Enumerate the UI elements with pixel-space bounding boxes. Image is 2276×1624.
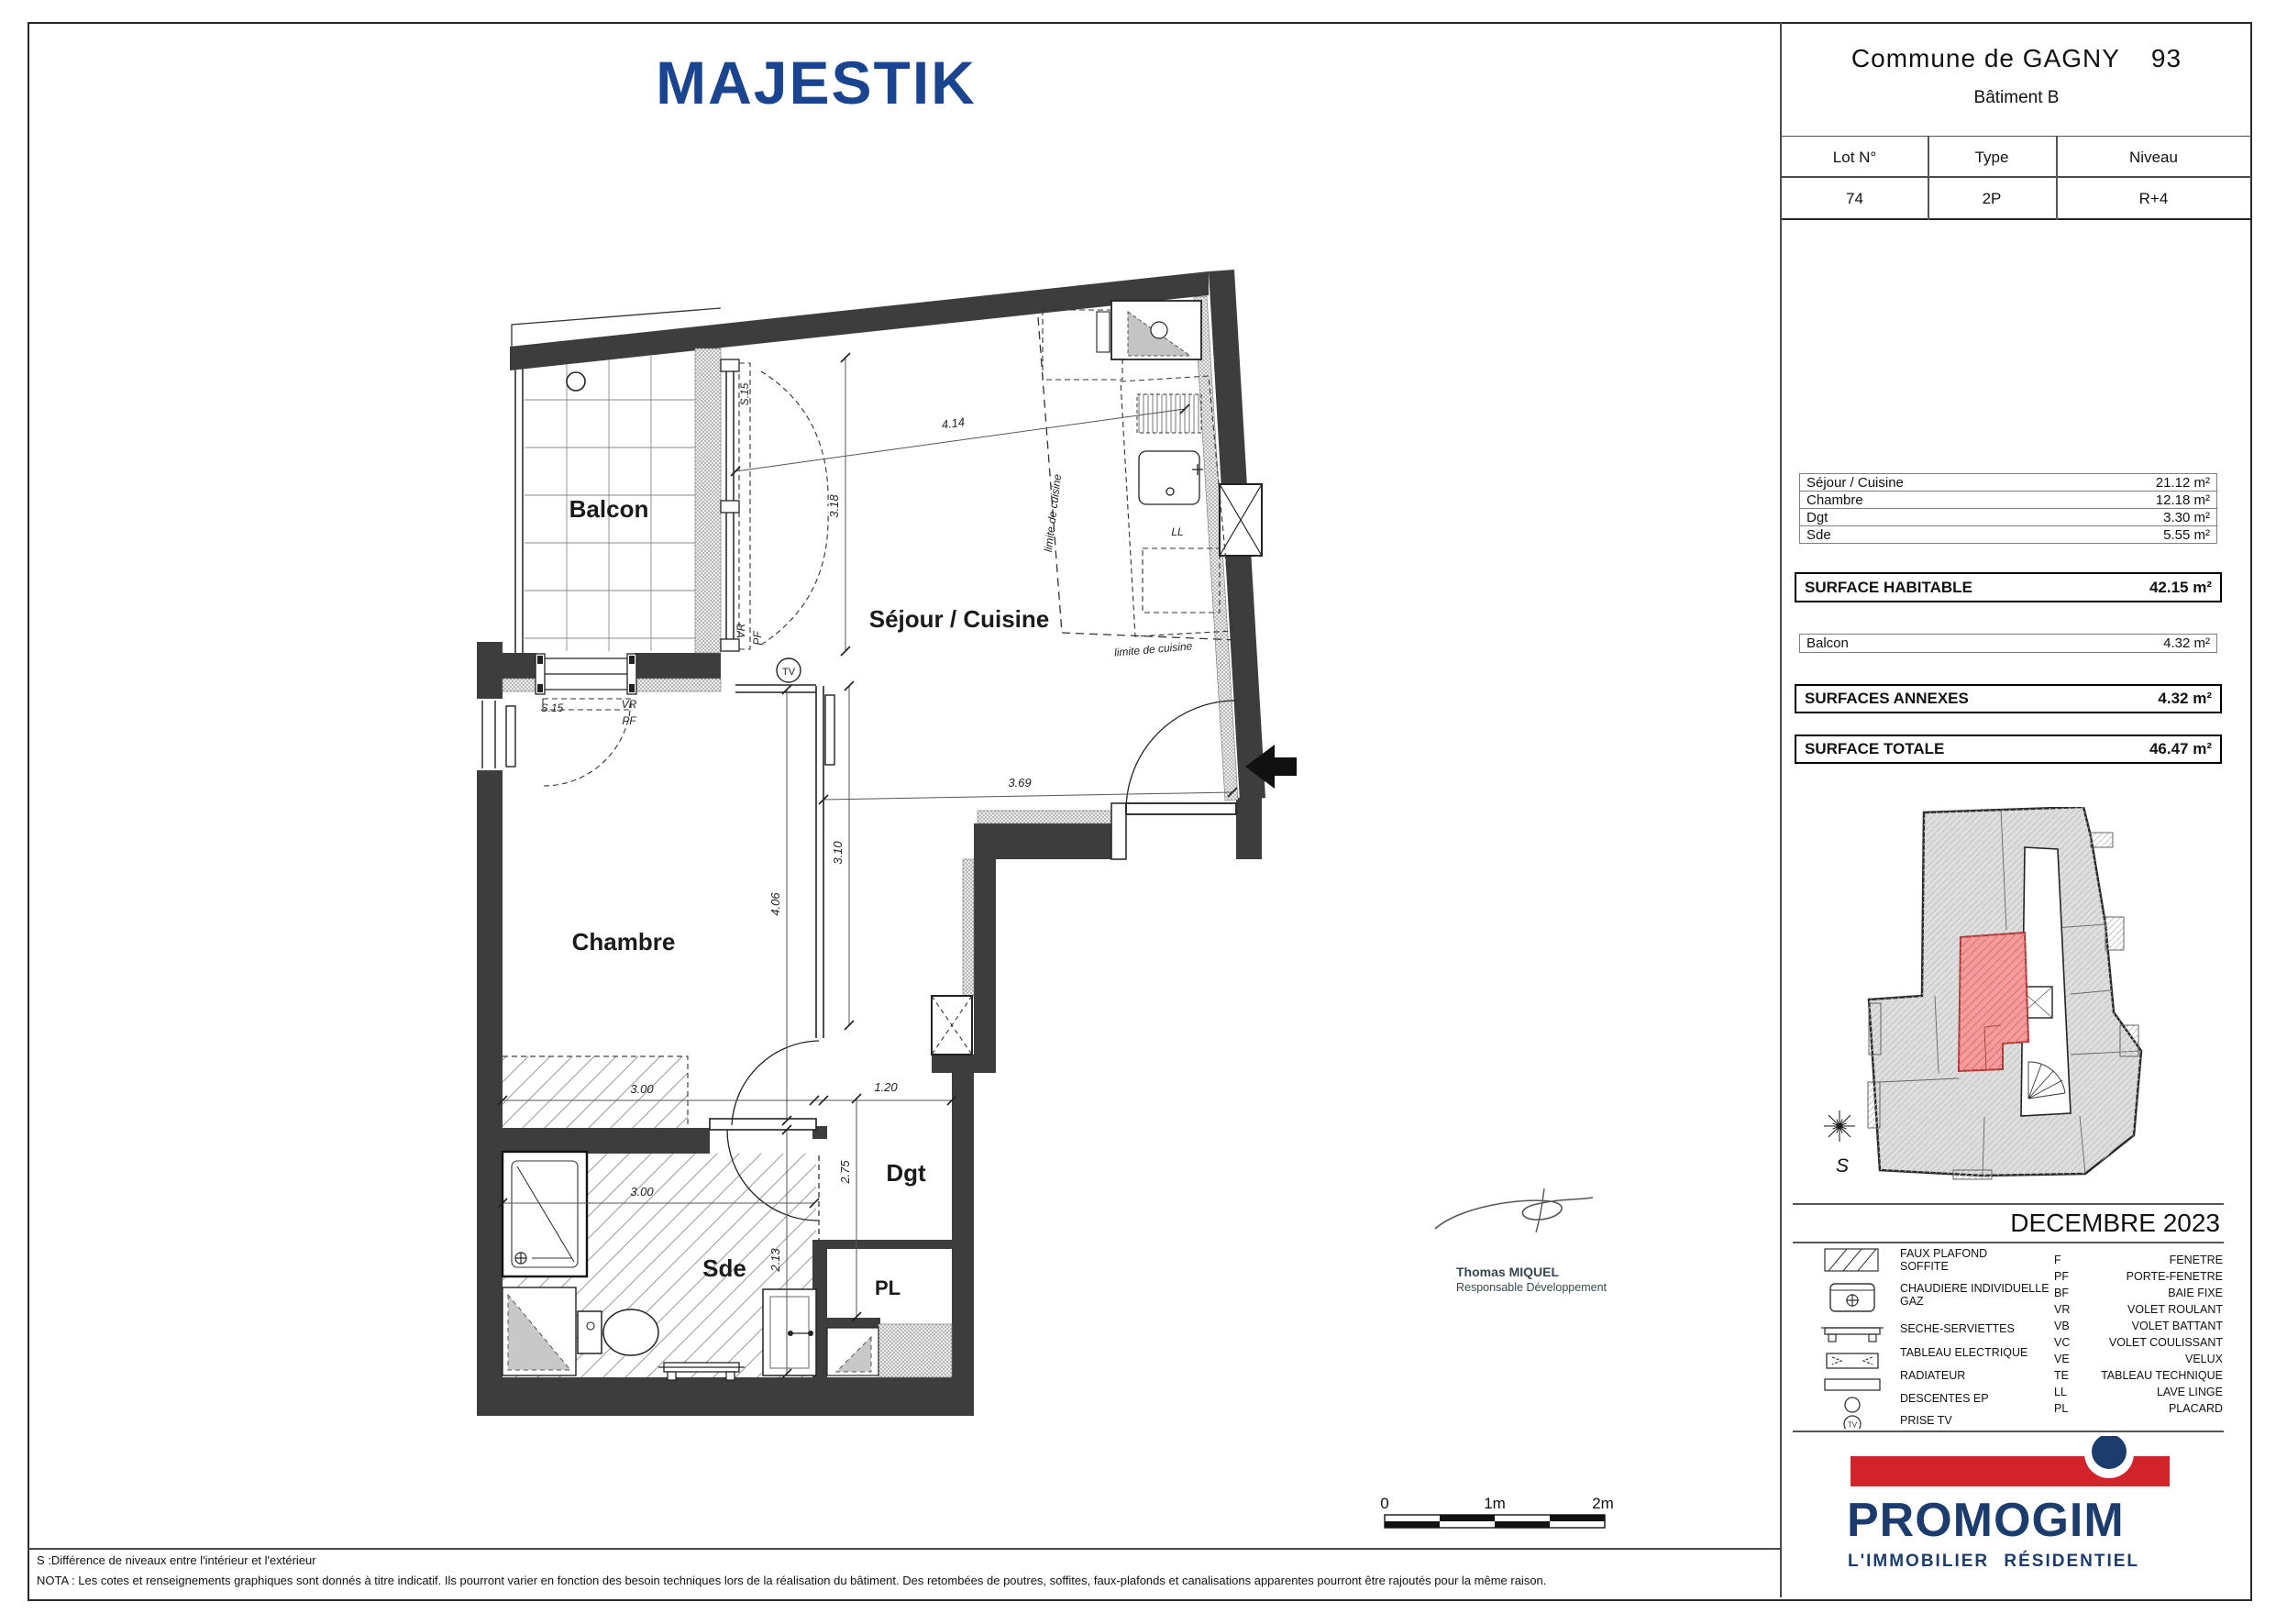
surface-totale-label: SURFACE TOTALE [1805, 740, 1944, 758]
lot-value-niveau: R+4 [2056, 190, 2251, 208]
surface-totale-box: SURFACE TOTALE46.47 m² [1795, 735, 2222, 764]
commune-name: Commune de GAGNY [1851, 44, 2120, 73]
signature: Thomas MIQUEL Responsable Développement [1435, 1188, 1608, 1294]
room-label-sejour: Séjour / Cuisine [869, 605, 1050, 633]
legend-line: SOFFITE [1900, 1260, 1987, 1273]
batiment-label: Bâtiment B [1788, 88, 2245, 108]
dim-369: 3.69 [1008, 776, 1031, 790]
balcony-vr: VR [735, 623, 747, 638]
room-label-balcon: Balcon [569, 495, 649, 523]
lot-header-niveau: Niveau [2056, 149, 2251, 167]
shower-drain-icon [515, 1253, 526, 1264]
kitchen-corner-unit [1097, 301, 1201, 359]
legend-name-bf: BAIE FIXE [2058, 1287, 2223, 1299]
legend-label-faux-plafond: FAUX PLAFOND SOFFITE [1900, 1247, 1987, 1273]
legend-name-pl: PLACARD [2058, 1402, 2223, 1415]
prise-tv-icon: TV [1844, 1416, 1861, 1429]
room-label-sde: Sde [702, 1254, 746, 1282]
scale-0: 0 [1380, 1495, 1388, 1512]
legend-icons: TV [1816, 1245, 1898, 1429]
surface-value: 3.30 m² [2163, 510, 2210, 525]
surface-habitable-label: SURFACE HABITABLE [1805, 579, 1972, 597]
faux-plafond-icon [1825, 1249, 1878, 1271]
site-mini-map: S [1788, 807, 2251, 1197]
legend-line: GAZ [1900, 1295, 2050, 1308]
dim-275: 2.75 [838, 1160, 852, 1185]
chambre-partition [735, 685, 823, 1038]
descentes-ep-icon [1845, 1398, 1860, 1412]
boiler-cabinet [763, 1289, 816, 1375]
surface-value: 12.18 m² [2156, 492, 2210, 508]
legend-line-bottom [1793, 1431, 2224, 1432]
legend-name-ve: VELUX [2058, 1353, 2223, 1365]
surface-value: 5.55 m² [2163, 527, 2210, 543]
limite-cuisine-h: limite de cuisine [1114, 639, 1194, 658]
tableau-electrique-icon [1827, 1353, 1878, 1368]
technical-shaft [932, 996, 972, 1055]
radiateur-icon [1825, 1379, 1880, 1390]
surface-label: Sde [1806, 527, 1831, 543]
washer-label: LL [1171, 525, 1183, 538]
lot-header-num: Lot N° [1782, 149, 1928, 167]
surfaces-annexes-box: SURFACES ANNEXES4.32 m² [1795, 684, 2222, 713]
lot-value-type: 2P [1928, 190, 2056, 208]
logo-tagline: L'IMMOBILIER RÉSIDENTIEL [1848, 1552, 2139, 1572]
dim-406: 4.06 [768, 892, 782, 916]
date-line-bottom [1793, 1242, 2224, 1243]
signature-name: Thomas MIQUEL [1456, 1265, 1559, 1279]
legend-line: FAUX PLAFOND [1900, 1247, 1987, 1260]
scale-1m: 1m [1484, 1495, 1506, 1512]
legend-name-f: FENETRE [2058, 1254, 2223, 1266]
surface-label: Dgt [1806, 510, 1828, 525]
legend-name-vb: VOLET BATTANT [2058, 1320, 2223, 1332]
scale-bar: 0 1m 2m [1380, 1495, 1614, 1528]
commune-dept: 93 [2151, 44, 2182, 73]
radiator-chambre [506, 706, 515, 767]
surface-totale-value: 46.47 m² [2149, 740, 2212, 758]
surface-label: Séjour / Cuisine [1806, 475, 1904, 491]
plan-sheet: MAJESTIK [0, 0, 2276, 1624]
surface-habitable-value: 42.15 m² [2149, 579, 2212, 597]
balcony-door-swing [739, 363, 828, 649]
soffit-triangle-sw [503, 1287, 576, 1375]
date-label: DECEMBRE 2023 [1793, 1209, 2220, 1238]
chambre-s15: S.15 [541, 702, 564, 714]
lot-table-line-top [1782, 136, 2251, 137]
lot-header-type: Type [1928, 149, 2056, 167]
balcony-railing [515, 367, 523, 653]
note-s: S :Différence de niveaux entre l'intérie… [37, 1553, 316, 1567]
kitchen-hob [1137, 394, 1201, 433]
dim-414: 4.14 [941, 414, 966, 431]
chambre-vr: VR [622, 698, 637, 711]
promogim-logo: PROMOGIM L'IMMOBILIER RÉSIDENTIEL [1845, 1436, 2193, 1583]
legend-label-prise-tv: PRISE TV [1900, 1414, 1952, 1427]
surface-row-sejour: Séjour / Cuisine21.12 m² [1799, 473, 2217, 492]
shower [503, 1152, 587, 1276]
note-nota: NOTA : Les cotes et renseignements graph… [37, 1574, 1546, 1587]
dim-318: 3.18 [827, 494, 841, 518]
lot-value-num: 74 [1782, 190, 1928, 208]
rainwater-downpipe-icon [567, 372, 585, 391]
chambre-hatch-zone [503, 1056, 688, 1128]
surface-habitable-box: SURFACE HABITABLE42.15 m² [1795, 572, 2222, 602]
tv-socket-label: TV [782, 667, 796, 678]
floor-plan: TV 4.14 3.18 3.10 4.06 3.69 [0, 0, 1779, 1624]
panel-divider [1780, 22, 1782, 1597]
legend-line: PRISE TV [1900, 1414, 1952, 1427]
compass-south-label: S [1836, 1155, 1849, 1177]
legend-line: RADIATEUR [1900, 1369, 1965, 1382]
legend-name-ll: LAVE LINGE [2058, 1386, 2223, 1398]
dim-213: 2.13 [768, 1248, 782, 1273]
legend-name-vr: VOLET ROULANT [2058, 1303, 2223, 1316]
kitchen-sink [1139, 451, 1203, 504]
balcony-door-window [721, 359, 739, 651]
legend-name-pf: PORTE-FENETRE [2058, 1270, 2223, 1283]
surface-row-sde: Sde5.55 m² [1799, 525, 2217, 544]
date-line-top [1793, 1203, 2224, 1205]
soffit-triangle-pl [827, 1328, 878, 1375]
surface-row-chambre: Chambre12.18 m² [1799, 491, 2217, 509]
chambre-west-window [477, 699, 503, 770]
surface-value: 21.12 m² [2156, 475, 2210, 491]
legend-label-seche: SECHE-SERVIETTES [1900, 1322, 2015, 1335]
surfaces-annexes-label: SURFACES ANNEXES [1805, 690, 1969, 708]
signature-role: Responsable Développement [1456, 1281, 1608, 1294]
balcony-s15: S.15 [738, 382, 751, 405]
entry-door [1111, 701, 1236, 859]
dim-310: 3.10 [831, 841, 845, 865]
room-label-dgt: Dgt [886, 1159, 926, 1187]
logo-name: PROMOGIM [1847, 1493, 2125, 1548]
legend-name-vc: VOLET COULISSANT [2058, 1336, 2223, 1349]
legend-name-te: TABLEAU TECHNIQUE [2058, 1369, 2223, 1382]
scale-2m: 2m [1592, 1495, 1614, 1512]
washer-slot [1143, 548, 1220, 613]
legend-line: CHAUDIERE INDIVIDUELLE [1900, 1282, 2050, 1295]
legend-label-tableau: TABLEAU ELECTRIQUE [1900, 1346, 2027, 1359]
panel-header: Commune de GAGNY 93 [1788, 44, 2245, 73]
legend-line: TABLEAU ELECTRIQUE [1900, 1346, 2027, 1359]
tv-socket-icon: TV [777, 658, 801, 682]
balcony-pf: PF [751, 631, 764, 646]
surfaces-annexes-value: 4.32 m² [2158, 690, 2212, 708]
surface-label: Chambre [1806, 492, 1863, 508]
lot-table-line-mid [1782, 176, 2251, 178]
chambre-pf: PF [622, 714, 636, 727]
surface-row-balcon: Balcon4.32 m² [1799, 634, 2217, 653]
chambre-north-window [536, 653, 636, 694]
chaudiere-icon [1830, 1284, 1874, 1311]
limite-cuisine-v: limite de cuisine [1042, 473, 1064, 553]
prise-tv-glyph: TV [1848, 1421, 1858, 1430]
room-label-chambre: Chambre [572, 928, 676, 956]
surface-label: Balcon [1806, 635, 1849, 651]
wc [578, 1309, 658, 1355]
legend-label-radiateur: RADIATEUR [1900, 1369, 1965, 1382]
compass-icon: S [1824, 1110, 1855, 1177]
legend-label-chaudiere: CHAUDIERE INDIVIDUELLE GAZ [1900, 1282, 2050, 1308]
legend-line: SECHE-SERVIETTES [1900, 1322, 2015, 1335]
room-label-pl: PL [875, 1276, 900, 1299]
baie-fixe-icon [1220, 484, 1262, 556]
seche-serviettes-icon [1821, 1328, 1884, 1342]
radiator-sejour [825, 695, 834, 765]
lot-table-line-bot [1782, 218, 2251, 220]
legend-label-descentes: DESCENTES EP [1900, 1392, 1989, 1405]
dim-120: 1.20 [874, 1080, 898, 1094]
surface-value: 4.32 m² [2163, 635, 2210, 651]
dim-300-sde: 3.00 [630, 1185, 654, 1199]
legend-line: DESCENTES EP [1900, 1392, 1989, 1405]
surface-row-dgt: Dgt3.30 m² [1799, 508, 2217, 526]
dim-300-chambre: 3.00 [630, 1082, 654, 1096]
